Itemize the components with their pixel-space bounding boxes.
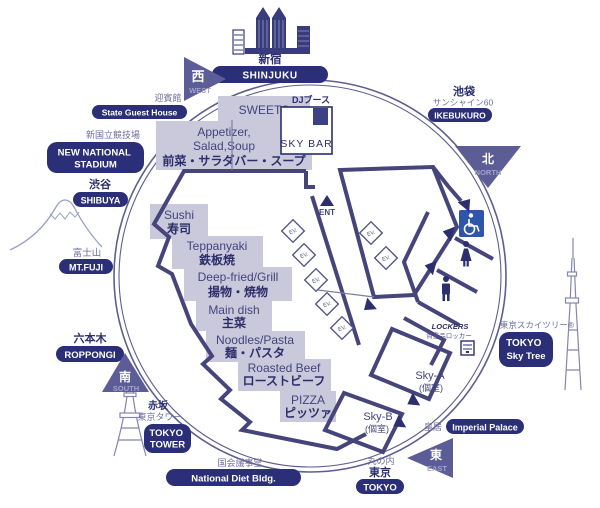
shinjuku-buildings-icon — [233, 7, 310, 54]
station-deep-fried-en: Deep-fried/Grill — [198, 270, 279, 284]
imperial-palace-label-jp: 皇居 — [424, 421, 442, 432]
station-main-dish-en: Main dish — [208, 303, 259, 317]
sky-b-label: Sky-B — [363, 411, 392, 423]
station-appetizer-en1: Appetizer, — [197, 125, 250, 139]
elevator-1: EV. — [282, 220, 305, 243]
accessible-toilet — [459, 210, 484, 237]
north-service-wall — [433, 167, 461, 201]
station-noodles: Noodles/Pasta 麺・パスタ — [206, 331, 305, 362]
elevator-3: EV. — [305, 269, 328, 292]
flow-arrow-icon — [359, 298, 377, 316]
station-roasted-beef-jp: ローストビーフ — [243, 373, 326, 388]
station-pizza: PIZZA ピッツァ — [280, 391, 336, 422]
sky-b-room-label: Sky-B (個室) — [363, 411, 392, 434]
east-kanji: 東 — [430, 447, 442, 462]
shinjuku-badge-label: SHINJUKU — [242, 71, 297, 82]
entrance-label: ENT — [319, 208, 335, 217]
station-appetizer-jp: 前菜・サラダバー・スープ — [162, 153, 306, 168]
station-pizza-jp: ピッツァ — [284, 406, 332, 420]
restaurant-floor-map: 新宿 SHINJUKU 迎賓館 State Guest House 新国立競技場… — [0, 0, 600, 508]
roppongi-label-jp: 六本木 — [74, 331, 108, 345]
east-label: EAST — [427, 464, 447, 473]
station-sushi-en: Sushi — [164, 208, 194, 222]
shibuya-badge-label: SHIBUYA — [81, 196, 121, 206]
elevator-2: EV. — [293, 244, 316, 267]
lockers-label-jp: 貴重品ロッカー — [426, 331, 472, 340]
sky-tree-icon — [565, 238, 581, 390]
state-guest-house-label-jp: 迎賓館 — [154, 92, 181, 103]
compass-north: 北 NORTH — [455, 146, 521, 188]
station-teppanyaki-en: Teppanyaki — [187, 239, 248, 253]
restroom-divider-walls — [418, 238, 493, 325]
sky-tree-badge-label: TOKYO Sky Tree — [506, 333, 546, 362]
station-deep-fried-jp: 揚物・焼物 — [208, 284, 268, 299]
national-diet-label-jp: 国会議事堂 — [217, 457, 262, 468]
restroom-man-icon — [442, 276, 450, 301]
shinjuku-label-jp: 新宿 — [259, 52, 282, 66]
station-noodles-jp: 麺・パスタ — [224, 345, 285, 360]
station-roasted-beef: Roasted Beef ローストビーフ — [238, 359, 331, 391]
akasaka-label-jp: 赤坂 — [148, 399, 169, 412]
station-main-dish-jp: 主菜 — [222, 315, 246, 330]
tokyo-label-jp: 東京 — [369, 465, 391, 479]
tokyo-tower-badge-label: TOKYO TOWER — [149, 428, 185, 451]
sky-b-sub-label: (個室) — [365, 423, 389, 434]
mt-fuji-icon — [10, 200, 102, 250]
entrance-triangle-icon — [320, 195, 334, 206]
ikebukuro-badge-label: IKEBUKURO — [434, 111, 486, 121]
west-kanji: 西 — [191, 69, 204, 84]
imperial-palace-badge-label: Imperial Palace — [452, 423, 518, 433]
sky-tree-label-jp: 東京スカイツリー® — [500, 320, 575, 330]
station-sushi-jp: 寿司 — [167, 221, 191, 236]
state-guest-house-badge-label: State Guest House — [102, 108, 178, 118]
compass-east: 東 EAST — [407, 438, 453, 478]
shibuya-label-jp: 渋谷 — [89, 177, 112, 191]
sunshine60-label-jp: サンシャイン60 — [433, 98, 494, 108]
sky-tree-line1: TOKYO — [506, 338, 542, 349]
elevator-6: EV. — [360, 222, 383, 245]
new-national-stadium-line2: STADIUM — [74, 160, 117, 171]
south-label: SOUTH — [113, 384, 139, 393]
station-teppanyaki-jp: 鉄板焼 — [199, 252, 235, 267]
station-roasted-beef-en: Roasted Beef — [248, 361, 321, 375]
elevator-4: EV. — [316, 293, 339, 316]
new-national-stadium-label-jp: 新国立競技場 — [86, 129, 140, 140]
marunouchi-label-jp: 丸の内 — [367, 455, 394, 466]
sky-bar-label: SKY BAR — [280, 138, 332, 150]
south-kanji: 南 — [119, 369, 131, 384]
compass-west: 西 WEST — [184, 57, 226, 101]
tokyo-tower-label-jp: 東京タワー — [137, 411, 182, 422]
roppongi-badge-label: ROPPONGI — [64, 350, 115, 361]
lockers-area: LOCKERS 貴重品ロッカー — [426, 322, 474, 355]
locker-icon — [461, 341, 474, 355]
station-deep-fried: Deep-fried/Grill 揚物・焼物 — [184, 267, 292, 301]
lockers-label-en: LOCKERS — [432, 322, 469, 331]
tokyo-badge-label: TOKYO — [363, 483, 397, 494]
station-teppanyaki: Teppanyaki 鉄板焼 — [172, 236, 263, 269]
station-appetizer-en2: Salad,Soup — [193, 139, 255, 153]
flow-arrow-icon — [458, 194, 476, 212]
station-main-dish: Main dish 主菜 — [196, 301, 272, 331]
station-pizza-en: PIZZA — [291, 393, 325, 407]
station-noodles-en: Noodles/Pasta — [216, 333, 294, 347]
national-diet-badge-label: National Diet Bldg. — [191, 474, 275, 485]
north-kanji: 北 — [482, 151, 494, 166]
north-label: NORTH — [475, 168, 502, 177]
mt-fuji-label-jp: 富士山 — [73, 247, 102, 259]
elevator-hall-wall — [340, 167, 457, 297]
sky-a-sub-label: (個室) — [419, 382, 443, 393]
entrance-marker: ENT — [319, 195, 335, 217]
mt-fuji-badge-label: MT.FUJI — [69, 263, 103, 273]
entrance-notch-wall — [306, 171, 315, 187]
elevator-7: EV. — [375, 247, 398, 270]
new-national-stadium-line1: NEW NATIONAL — [58, 148, 131, 159]
sky-a-room-label: Sky-A (個室) — [415, 370, 445, 393]
floor-map-svg: 新宿 SHINJUKU 迎賓館 State Guest House 新国立競技場… — [0, 0, 600, 508]
ikebukuro-label-jp: 池袋 — [453, 84, 476, 98]
west-label: WEST — [189, 86, 211, 95]
sky-a-label: Sky-A — [415, 370, 445, 382]
dj-booth-icon — [313, 108, 328, 125]
sky-tree-line2: Sky Tree — [506, 351, 545, 362]
station-sushi: Sushi 寿司 — [150, 204, 208, 239]
tokyo-tower-line1: TOKYO — [149, 428, 183, 439]
tokyo-tower-line2: TOWER — [150, 440, 185, 451]
dj-booth-label: DJブース — [292, 94, 330, 105]
